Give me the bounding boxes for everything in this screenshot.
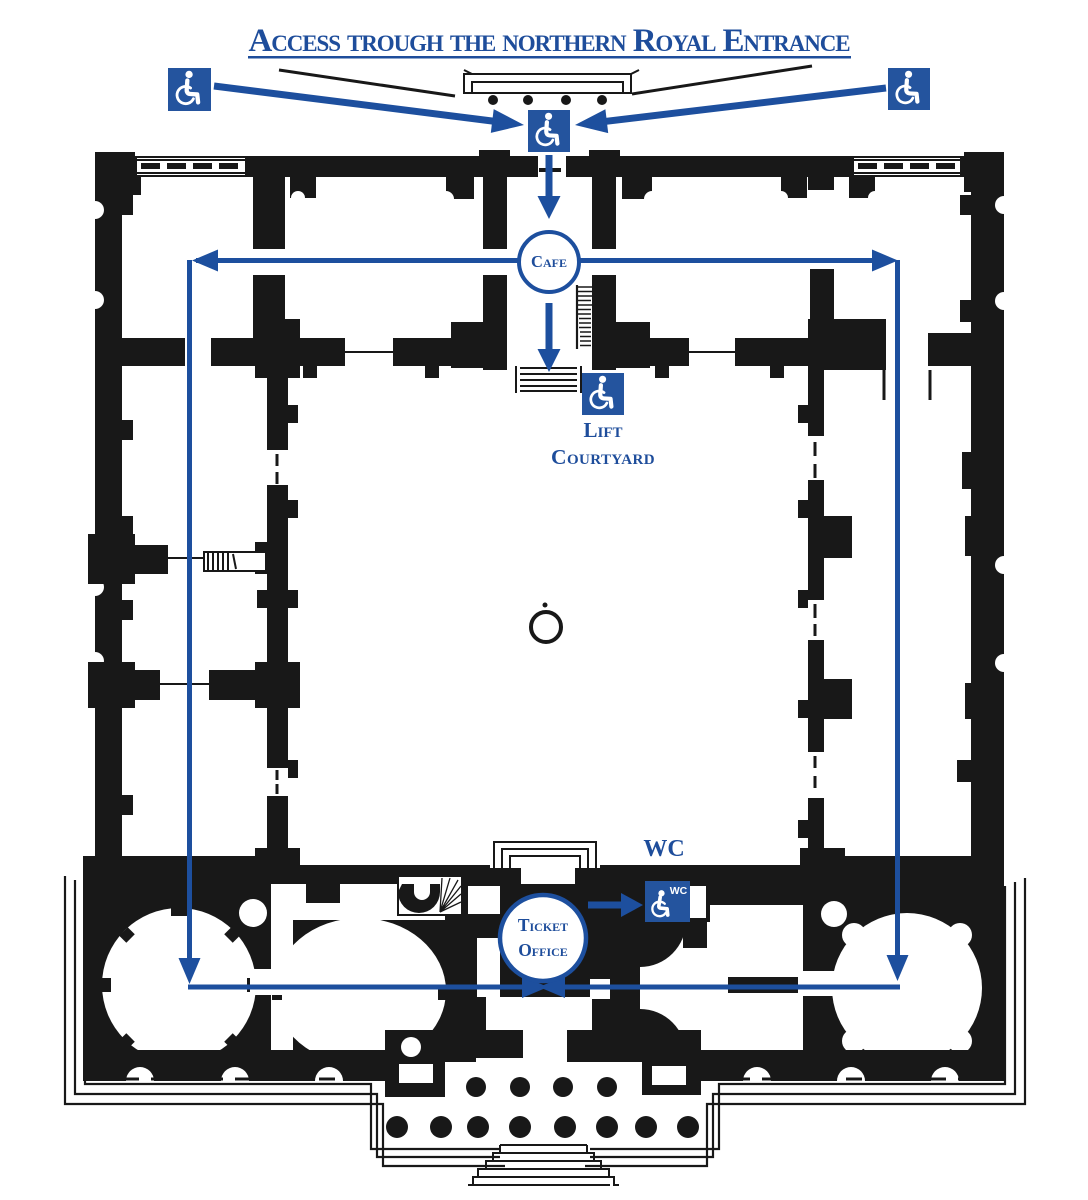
svg-text:Lift: Lift: [583, 418, 622, 442]
svg-text:Cafe: Cafe: [531, 252, 567, 271]
svg-text:Courtyard: Courtyard: [551, 445, 655, 469]
svg-text:WC: WC: [643, 836, 684, 862]
svg-text:Ticket: Ticket: [518, 915, 568, 935]
svg-text:WC: WC: [670, 885, 688, 897]
svg-text:Office: Office: [518, 940, 568, 960]
svg-text:Access trough the northern Roy: Access trough the northern Royal Entranc…: [249, 23, 851, 59]
